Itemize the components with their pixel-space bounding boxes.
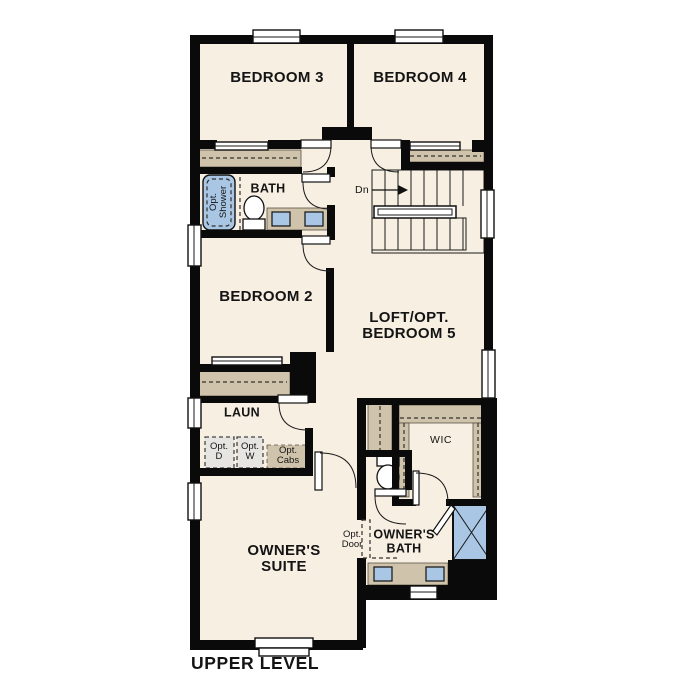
opt-shower-label: Opt. Shower bbox=[209, 186, 229, 218]
bath-toilet bbox=[243, 196, 265, 230]
level-title: UPPER LEVEL bbox=[191, 655, 319, 671]
window-owners-suite-bottom bbox=[255, 638, 313, 648]
floor-plan-canvas: BEDROOM 3 BEDROOM 4 BATH BEDROOM 2 LOFT/… bbox=[0, 0, 687, 687]
bedroom-divider-wall bbox=[347, 44, 354, 132]
opt-dryer-label: Opt. D bbox=[210, 442, 228, 462]
room-label-wic: WIC bbox=[430, 432, 452, 448]
bedroom2-closet bbox=[199, 371, 290, 396]
bath-sink-left bbox=[272, 212, 290, 226]
owners-sink-left bbox=[374, 567, 392, 581]
owners-bath-vanity bbox=[368, 563, 448, 585]
room-label-bath: BATH bbox=[251, 182, 286, 196]
loft-bottom-wall bbox=[357, 398, 492, 405]
room-label-loft: LOFT/OPT. BEDROOM 5 bbox=[362, 310, 456, 342]
bedroom3-closet bbox=[199, 150, 301, 167]
stair-handrail bbox=[374, 206, 456, 218]
wic-shelf-top bbox=[399, 405, 483, 423]
room-label-bedroom4: BEDROOM 4 bbox=[373, 70, 467, 86]
bath-sink-right bbox=[305, 212, 323, 226]
owners-shower bbox=[453, 505, 490, 560]
exterior-wall-left bbox=[190, 35, 200, 650]
floor-plan-drawing bbox=[0, 0, 687, 687]
bath-vanity bbox=[267, 208, 330, 230]
owners-sink-right bbox=[426, 567, 444, 581]
room-label-bedroom2: BEDROOM 2 bbox=[219, 289, 313, 305]
room-label-bedroom3: BEDROOM 3 bbox=[230, 70, 324, 86]
room-label-owners-suite: OWNER'S SUITE bbox=[247, 543, 320, 575]
room-label-laundry: LAUN bbox=[224, 406, 260, 420]
opt-washer-label: Opt. W bbox=[241, 442, 259, 462]
room-label-owners-bath: OWNER'S BATH bbox=[373, 529, 434, 556]
opt-door-label: Opt. Door bbox=[342, 530, 363, 550]
stairs-down-label: Dn bbox=[355, 182, 369, 198]
exterior-wall-top bbox=[196, 35, 491, 44]
opt-cabs-label: Opt. Cabs bbox=[277, 446, 299, 466]
